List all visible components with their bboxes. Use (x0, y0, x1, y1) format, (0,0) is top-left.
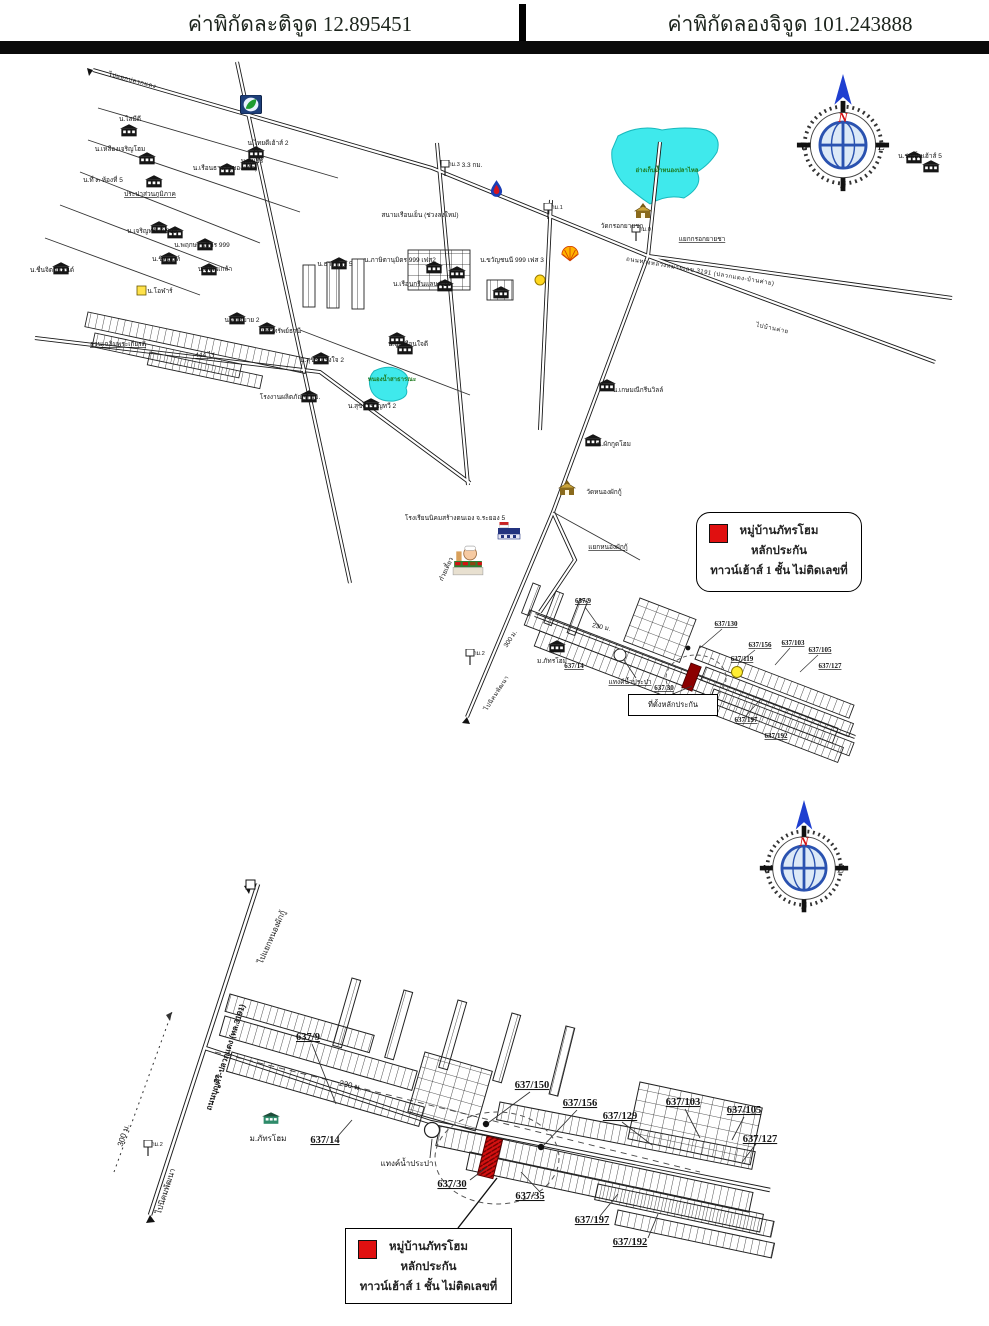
townhouse-rows (85, 250, 854, 762)
map-label: น.สุขีรื่นเริงใจ 2 (300, 355, 344, 364)
shell-station-icon (562, 246, 578, 260)
map-label: น.ผักกูดโฮม (597, 440, 631, 448)
map2-buildings (262, 1112, 280, 1123)
map-label: 637/14 (564, 662, 584, 670)
map-label: วัดกรอกยายชา (601, 222, 644, 230)
map-label: 637/127 (743, 1134, 777, 1145)
map-label: 637/192 (613, 1237, 647, 1248)
compass-rose (760, 800, 848, 912)
map2-km-signs: กม.2 (144, 1140, 163, 1156)
map-label: 637/130 (715, 620, 738, 628)
km-marker-label: กม.3 (448, 162, 460, 168)
bank-marker-icon (535, 275, 545, 285)
water-tank-icon (425, 1123, 440, 1138)
map-label: ก๋วยเตี๋ยว (436, 555, 455, 582)
building-icon (120, 124, 138, 136)
map-label: น.เรือนธารา (ของแก้ว) (193, 164, 258, 172)
map-label: น.พฤกษานุมิตร 999 (174, 241, 230, 249)
map-label: น.อยู่สบาย 2 (225, 317, 260, 324)
map-label: 637/192 (765, 732, 788, 740)
map-label: น.โอฬาร์ (147, 287, 173, 295)
map-label: น.ไทยดีเฮ้าส์ 2 (247, 139, 288, 147)
map-label: 637/30 (654, 684, 674, 692)
ptt-station-icon (491, 180, 502, 197)
building-icon (138, 152, 156, 164)
map-label: 637/14 (310, 1135, 340, 1146)
temple-icon (559, 480, 575, 495)
collateral-location-box: ที่ตั้งหลักประกัน (628, 694, 718, 716)
map-label: 637/30 (437, 1179, 466, 1190)
map-label: น.ธารทิพย์ 5 (317, 260, 353, 268)
map-label: น.เหลืองเจริญโฮม (95, 145, 146, 153)
map-label: โรงเรียนนิคมสร้างตนเอง จ.ระยอง 5 (405, 514, 506, 522)
building-icon (922, 160, 940, 172)
map-label: 637/119 (731, 655, 754, 663)
map-label: สวนเฉลิมพระเกียรติ (90, 340, 146, 348)
map-label: น.ร่มเย็นเฮ้าส์ 5 (898, 151, 942, 160)
legend-line2: หลักประกัน (346, 1257, 511, 1277)
map-label: น.ทวีทรัพย์ธานี (259, 327, 302, 335)
map-label: น.ชิตนนท์ (152, 255, 180, 263)
map-label: น.คันธีร์ (241, 157, 264, 165)
map-label: 637/156 (563, 1098, 597, 1109)
map-label: น.ไสมีดี (119, 115, 141, 123)
school-icon (498, 522, 520, 539)
map-label: แทงค์น้ำประปา (609, 677, 652, 686)
compass-rose (797, 74, 889, 191)
map-label: น.สุขสำราญทวี 2 (348, 402, 397, 410)
map-label: วัดหนองผักกู้ (586, 488, 621, 496)
map-label: แยกหนองผักกู้ (588, 543, 627, 551)
map-top: กม.3กม.1กม.0กม.2 ไปแยกปลวกแดงน.ไสมีดีน.เ… (30, 62, 952, 762)
map-label: 637/197 (575, 1215, 609, 1226)
legend-line3: ทาวน์เฮ้าส์ 1 ชั้น ไม่ติดเลขที่ (346, 1277, 511, 1297)
yellow-marker-icon (137, 286, 146, 295)
map-label: 637/127 (819, 662, 842, 670)
map-label: 637/197 (735, 716, 758, 724)
water-tank-icon (614, 649, 626, 661)
map-label: ม.ภัทรโฮม (537, 657, 567, 665)
map-label: 230 ม. (591, 622, 611, 633)
map-label: แยกกรอกยายชา (679, 236, 726, 243)
map-label: แทงค์น้ำประปา (381, 1157, 434, 1168)
map-label: สนามเรือนเย็น (ช่วงลงใหม่) (381, 210, 458, 219)
map-label: 637/129 (603, 1111, 637, 1122)
lotus-leaf-logo-icon (240, 95, 261, 114)
map-label: 637/9 (296, 1032, 320, 1043)
legend-box: หมู่บ้านภัทรโฮม หลักประกัน ทาวน์เฮ้าส์ 1… (696, 512, 862, 592)
map-label: น.ชื่นจิตต์แลนด์ (30, 265, 74, 274)
map-label: ไปแยกปลวกแดง (107, 70, 157, 91)
map-label: ม.ภัทรโฮม (250, 1133, 287, 1143)
map-label: 637/35 (515, 1191, 544, 1202)
map-canvas: N W E S (0, 0, 989, 1326)
map-label: 637/105 (809, 646, 832, 654)
map1-km-signs: กม.3กม.1กม.0กม.2 (441, 160, 651, 665)
map-label: ไปแยกหนองผักกู้ (255, 909, 288, 967)
highlight-circle (732, 667, 743, 678)
map-label: 637/150 (515, 1080, 549, 1091)
map-label: น.ขวัญชนนี 999 เฟส 3 (480, 256, 544, 264)
building-icon (145, 175, 163, 187)
map-label: น.ปูนเรือนใจดี (388, 340, 428, 348)
map-label: น.ตฤณเกล้า (198, 265, 233, 273)
map-label: 300 ม. (116, 1123, 132, 1148)
road-network (114, 880, 770, 1223)
map-label: น.ภาษิตานุมิตร 999 เฟส2 (364, 256, 436, 264)
map-label: 637/103 (666, 1097, 700, 1108)
map-label: 3.3 กม. (462, 162, 483, 169)
map-bottom: กม.2 ถนนบุญศิริ-ปลวกแดง (ทล.3191)ไปแยกหน… (114, 800, 848, 1258)
map-label: 444 ไร่ (195, 351, 215, 359)
map1-labels: ไปแยกปลวกแดงน.ไสมีดีน.เหลืองเจริญโฮมน.เร… (30, 70, 942, 740)
km-marker-label: กม.2 (151, 1142, 163, 1148)
map-label: โรงงานผลิตภัณฑ์ ออ. (260, 393, 321, 401)
building-icon (247, 146, 265, 158)
map-label: ไปนิคมพัฒนา (481, 674, 510, 713)
survey-map-page: ค่าพิกัดละติจูด 12.895451 ค่าพิกัดลองจิจ… (0, 0, 989, 1326)
map-label: 637/103 (782, 639, 805, 647)
legend-box: หมู่บ้านภัทรโฮม หลักประกัน ทาวน์เฮ้าส์ 1… (345, 1228, 512, 1304)
map-label: น.เกษมณีกรีนวิลล์ (613, 386, 664, 394)
km-marker-label: กม.1 (551, 205, 563, 211)
temple-icon (635, 203, 651, 218)
map-label: น.ที่ ๓ ห้องที่ 5 (83, 175, 123, 184)
building-icon (262, 1112, 280, 1123)
map-label: 300 ม. (503, 629, 519, 649)
map-label: 637/9 (575, 597, 591, 605)
legend-line3: ทาวน์เฮ้าส์ 1 ชั้น ไม่ติดเลขที่ (697, 561, 861, 581)
legend-line2: หลักประกัน (697, 541, 861, 561)
townhouse-rows (219, 978, 774, 1258)
small-pond (369, 367, 408, 401)
map-label: ประปาส่วนภูมิภาค (124, 190, 176, 198)
km-marker-label: กม.2 (473, 651, 485, 657)
map-label: ไปบ้านค่าย (754, 320, 789, 335)
map-label: น.เจริญทรัพย์ 999 (127, 227, 177, 235)
legend-red-square (709, 524, 728, 543)
legend-red-square (358, 1240, 377, 1259)
road-network (35, 62, 952, 737)
map-label: น.เรือนกรีนแลนด์ 10 (393, 280, 451, 288)
noodle-shop-icon (453, 546, 483, 575)
map-label: 637/105 (727, 1105, 761, 1116)
map-label: 637/156 (749, 641, 772, 649)
